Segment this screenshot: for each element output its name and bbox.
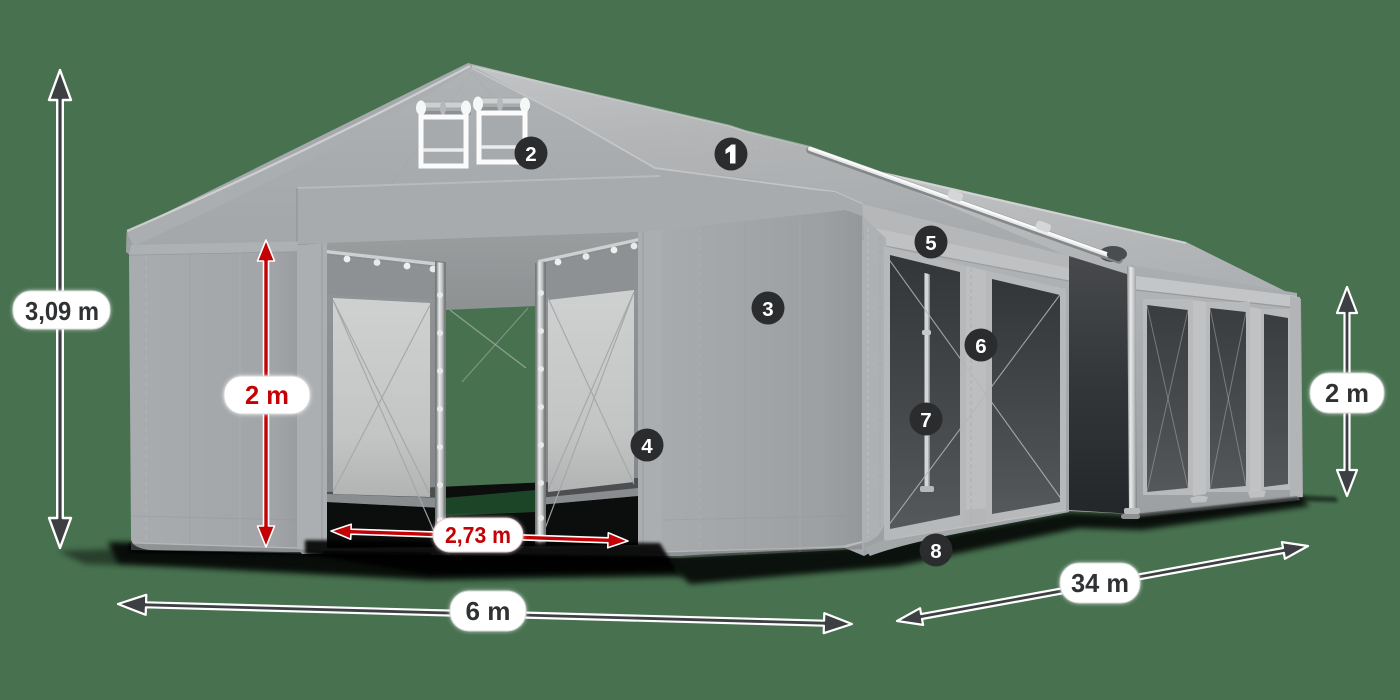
svg-text:2 m: 2 m bbox=[245, 380, 289, 410]
svg-text:6: 6 bbox=[975, 335, 986, 358]
svg-text:2: 2 bbox=[525, 143, 536, 166]
svg-text:8: 8 bbox=[930, 540, 941, 563]
svg-text:7: 7 bbox=[920, 409, 931, 432]
svg-text:6 m: 6 m bbox=[466, 596, 511, 626]
svg-text:4: 4 bbox=[641, 435, 653, 458]
svg-text:5: 5 bbox=[925, 232, 936, 255]
svg-text:3: 3 bbox=[762, 298, 773, 321]
svg-text:34 m: 34 m bbox=[1071, 568, 1129, 598]
svg-text:2,73 m: 2,73 m bbox=[445, 522, 511, 548]
svg-text:2 m: 2 m bbox=[1325, 378, 1369, 408]
svg-text:3,09 m: 3,09 m bbox=[25, 296, 99, 326]
